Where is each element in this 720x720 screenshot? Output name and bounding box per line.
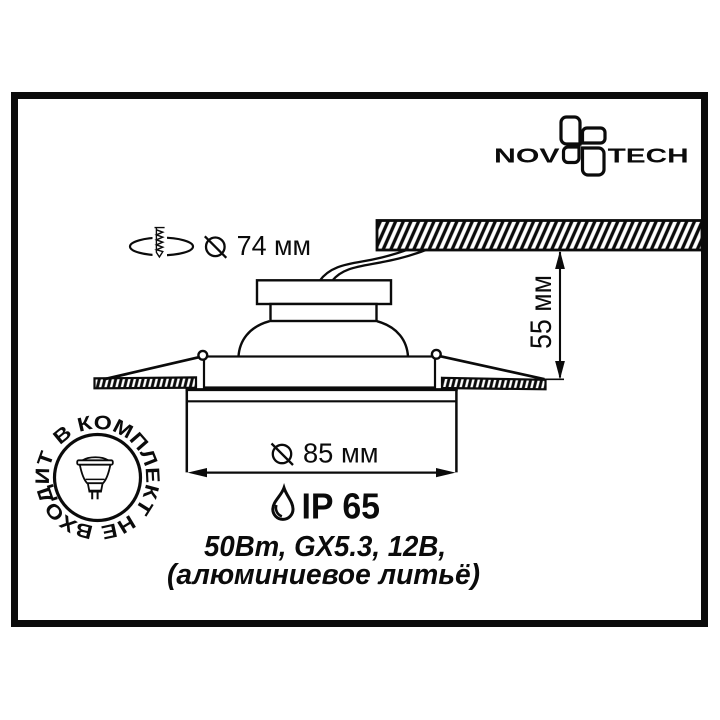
- svg-text:55 мм: 55 мм: [525, 275, 558, 349]
- svg-text:IP 65: IP 65: [302, 485, 381, 526]
- svg-text:(алюминиевое литьё): (алюминиевое литьё): [167, 559, 480, 591]
- svg-text:85 мм: 85 мм: [303, 438, 379, 469]
- svg-text:74 мм: 74 мм: [237, 230, 312, 261]
- svg-text:TECH: TECH: [608, 146, 689, 168]
- svg-text:NOV: NOV: [494, 146, 560, 168]
